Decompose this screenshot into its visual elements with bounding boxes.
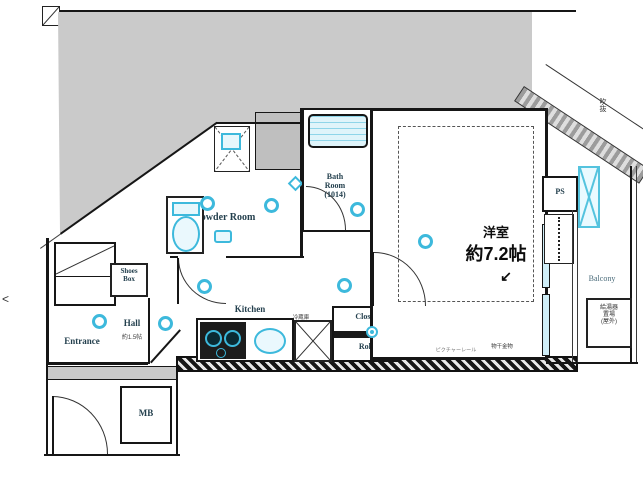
picture-rail-label: ピクチャーレール — [436, 346, 477, 354]
downlight-icon — [158, 316, 173, 331]
corridor-door-arc — [52, 396, 108, 454]
bath-room-label: Bath Room (1014) — [306, 172, 364, 200]
fridge-cross-icon — [296, 322, 330, 360]
entrance-storage — [54, 242, 116, 306]
wall-powder-bottom-b — [226, 256, 304, 258]
wall-powder-top — [216, 122, 306, 124]
balcony-rail-edge — [636, 166, 637, 364]
wall-entrance-hall — [148, 298, 150, 364]
pipe-space-label: PS — [542, 187, 578, 196]
main-room-size: 約7.2帖 — [444, 240, 548, 266]
main-room-name: 洋室 — [444, 222, 548, 241]
vanity-bowl-icon — [172, 216, 200, 252]
entrance-label: Entrance — [52, 336, 112, 346]
void-block — [255, 112, 305, 170]
laundry-hook-label: 物干金物 — [491, 341, 513, 349]
storage-divider — [56, 276, 114, 277]
corridor-wall-band — [46, 366, 178, 380]
window-icon — [542, 294, 550, 356]
corridor-right-wall — [176, 372, 178, 456]
washer-space — [214, 126, 250, 172]
balcony-bottom-line — [546, 362, 638, 364]
downlight-icon — [350, 202, 365, 217]
wall-entrance-left — [46, 238, 49, 364]
stove-icon — [200, 322, 246, 359]
corridor-door-leaf — [52, 396, 54, 454]
fridge-space — [294, 320, 332, 362]
notch-diagonal — [43, 7, 59, 25]
balcony-inner-line2 — [577, 210, 578, 362]
fix-window-icon — [578, 166, 600, 228]
burner-icon — [205, 330, 222, 347]
vanity-tank — [172, 202, 200, 216]
shaft-box — [544, 214, 574, 264]
direction-arrow: ↙ — [496, 268, 516, 285]
hall-label: Hall — [112, 318, 152, 328]
downlight-icon — [92, 314, 107, 329]
bathtub-icon — [308, 114, 368, 148]
stool-icon — [214, 230, 232, 243]
sink-icon — [254, 328, 286, 354]
shoes-box-label: Shoes Box — [110, 267, 148, 283]
frame-notch-box — [42, 6, 60, 26]
fan-symbol — [366, 326, 378, 338]
downlight-icon — [418, 234, 433, 249]
frame-bottom-line — [44, 454, 180, 456]
burner-icon — [224, 330, 241, 347]
washer-icon — [221, 133, 241, 150]
frame-top-line — [48, 10, 576, 12]
main-room-door-leaf — [372, 252, 374, 306]
balcony-label: Balcony — [576, 274, 628, 283]
nav-arrow: < — [2, 292, 9, 306]
burner-small-icon — [216, 348, 226, 358]
powder-door-leaf — [177, 258, 179, 304]
downlight-icon — [337, 278, 352, 293]
boiler-label: 給湯器 置場 (屋外) — [586, 305, 632, 327]
kitchen-label: Kitchen — [220, 304, 280, 314]
hall-size-label: 約1.5帖 — [112, 332, 152, 341]
downlight-icon — [200, 196, 215, 211]
meter-box-label: MB — [120, 408, 172, 418]
window-diagonal — [56, 244, 114, 276]
corridor-left-wall — [46, 364, 48, 456]
wall-entrance-bottom — [46, 362, 148, 365]
balcony-inner-line — [572, 210, 573, 362]
fix-window-cross — [580, 168, 598, 226]
corner-note: 吹抜 — [597, 98, 607, 112]
downlight-icon — [197, 279, 212, 294]
shaft-dotted-line — [558, 217, 560, 261]
downlight-icon — [264, 198, 279, 213]
floor-plan: < 吹抜 MB Shoes Box Entrance Hall 約1.5帖 Po… — [0, 0, 643, 492]
vanity-unit — [166, 196, 204, 254]
